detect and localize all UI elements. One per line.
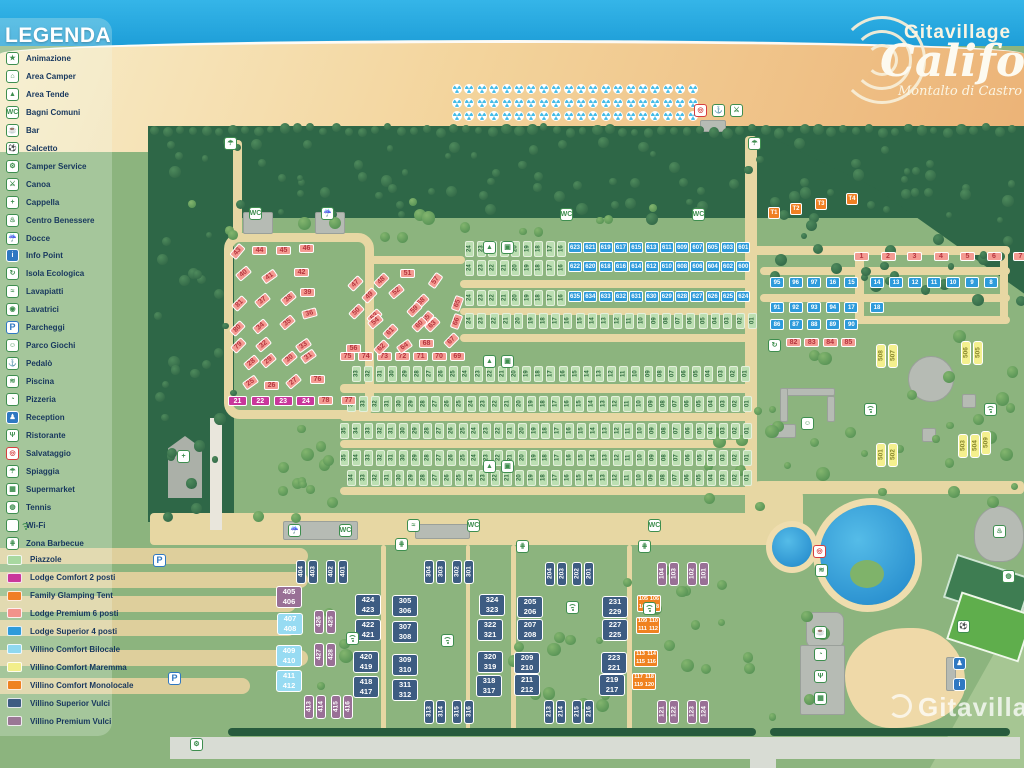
legend-label: Camper Service <box>26 162 86 171</box>
tree <box>299 481 307 489</box>
plot-20: 20 <box>514 313 523 329</box>
plot-34: 34 <box>352 423 361 439</box>
tree <box>948 486 960 498</box>
tree <box>960 189 971 200</box>
tennis-icon: ◍ <box>1002 570 1015 583</box>
tree <box>402 169 408 175</box>
tree <box>514 642 524 652</box>
plot-22: 22 <box>491 396 500 412</box>
plot-05: 05 <box>695 396 704 412</box>
plot-27: 27 <box>431 396 440 412</box>
plot-86: 86 <box>770 319 784 330</box>
centro-benessere-icon: ♨ <box>6 214 19 227</box>
wifi-icon <box>984 403 997 416</box>
plot-08: 08 <box>662 313 671 329</box>
plot-48: 48 <box>373 272 390 289</box>
villa-324-323: 324323 <box>479 594 505 616</box>
plot-08: 08 <box>660 450 669 466</box>
plot-69: 69 <box>450 352 465 361</box>
plot-2: 2 <box>881 252 896 261</box>
plot-71: 71 <box>413 352 428 361</box>
tree <box>547 643 560 656</box>
watermark-spiral-icon <box>888 694 912 718</box>
plot-32: 32 <box>376 450 385 466</box>
plot-22: 22 <box>486 366 495 382</box>
plot-10: 10 <box>637 313 646 329</box>
tree <box>189 127 197 135</box>
plot-12: 12 <box>611 470 620 486</box>
plot-08: 08 <box>660 423 669 439</box>
plot-23: 23 <box>479 396 488 412</box>
accommodation-swatch <box>7 573 22 583</box>
plot-34: 34 <box>352 450 361 466</box>
plot-632: 632 <box>614 291 628 302</box>
plot-39: 39 <box>300 288 315 297</box>
plot-70: 70 <box>432 352 447 361</box>
beach-umbrella-icon <box>564 98 574 108</box>
plot-8: 8 <box>984 277 998 288</box>
legend-item-animazione: ★Animazione <box>6 52 71 65</box>
tree <box>306 485 314 493</box>
road <box>340 384 757 393</box>
tree <box>1008 125 1016 133</box>
plot-602: 602 <box>721 261 735 272</box>
plot-02: 02 <box>731 470 740 486</box>
plot-12: 12 <box>613 450 622 466</box>
plot-23: 23 <box>274 396 293 406</box>
villa-202-201: 202201 <box>572 562 594 586</box>
tree <box>487 178 494 185</box>
bagni-comuni-icon: WC <box>6 106 19 119</box>
plot-601: 601 <box>736 242 750 253</box>
villa-109-110-111-112: 109110111112 <box>636 617 660 634</box>
plot-14: 14 <box>583 366 592 382</box>
tree <box>598 137 608 147</box>
plot-607: 607 <box>690 242 704 253</box>
plot-03: 03 <box>719 450 728 466</box>
ristorante-icon: Ψ <box>6 429 19 442</box>
plot-621: 621 <box>583 242 597 253</box>
tree <box>851 159 860 168</box>
tree <box>638 142 648 152</box>
villa-305-306: 305306 <box>392 595 418 617</box>
tree <box>861 450 868 457</box>
plot-31: 31 <box>387 450 396 466</box>
tree <box>297 190 304 197</box>
legend-item-centro-benessere: ♨Centro Benessere <box>6 214 94 227</box>
legend-label: Bagni Comuni <box>26 108 80 117</box>
plot-82: 82 <box>786 338 801 347</box>
tree <box>644 128 653 137</box>
villa-117-118-119-120: 117118119120 <box>632 673 656 690</box>
tree <box>291 513 301 523</box>
legend-label: Villino Comfort Bilocale <box>30 645 120 654</box>
plot-16: 16 <box>557 260 566 276</box>
tree <box>345 128 353 136</box>
plot-04: 04 <box>707 450 716 466</box>
plot-25: 25 <box>459 423 468 439</box>
plot-20: 20 <box>518 423 527 439</box>
legend-item-calcetto: ⚽Calcetto <box>6 142 58 155</box>
beach-umbrella-icon <box>452 111 462 121</box>
plot-10: 10 <box>636 423 645 439</box>
plot-05: 05 <box>696 450 705 466</box>
tree <box>729 179 739 189</box>
plot-07: 07 <box>668 366 677 382</box>
plot-97: 97 <box>807 277 821 288</box>
plot-11: 11 <box>624 423 633 439</box>
tree <box>813 124 824 135</box>
plot-623: 623 <box>568 242 582 253</box>
plot-24: 24 <box>461 366 470 382</box>
supermarket-icon: ▦ <box>6 483 19 496</box>
tree <box>925 170 936 181</box>
legend-item-lavapiatti: ≈Lavapiatti <box>6 285 63 298</box>
plot-21: 21 <box>228 396 247 406</box>
plot-14: 14 <box>589 423 598 439</box>
plot-610: 610 <box>660 261 674 272</box>
tree <box>169 166 181 178</box>
tree <box>744 166 753 175</box>
plot-19: 19 <box>523 241 532 257</box>
plot-05: 05 <box>695 470 704 486</box>
legend-label: Animazione <box>26 54 71 63</box>
legend-item-bagni-comuni: WCBagni Comuni <box>6 106 80 119</box>
plot-17: 17 <box>551 470 560 486</box>
tree <box>709 127 719 137</box>
plot-32: 32 <box>364 366 373 382</box>
legend-label: Centro Benessere <box>26 216 94 225</box>
plot-7: 7 <box>1013 252 1024 261</box>
legend-label: Family Glamping Tent <box>30 591 113 600</box>
villa-219-217: 219217 <box>599 674 625 696</box>
plot-24: 24 <box>465 241 474 257</box>
tree <box>176 126 184 134</box>
wifi-icon <box>864 403 877 416</box>
plot-30: 30 <box>399 423 408 439</box>
tree <box>604 215 613 224</box>
plot-626: 626 <box>706 291 720 302</box>
plot-620: 620 <box>583 261 597 272</box>
tree <box>852 127 860 135</box>
plot-06: 06 <box>684 450 693 466</box>
reception-icon: ♟ <box>953 657 966 670</box>
plot-13: 13 <box>595 366 604 382</box>
plot-29: 29 <box>401 366 410 382</box>
villa-102-101: 102101 <box>687 562 709 586</box>
villa-404-403: 404403 <box>296 560 318 584</box>
tree <box>565 635 576 646</box>
villa-313-314: 313314 <box>424 700 446 724</box>
plot-03: 03 <box>723 313 732 329</box>
plot-10: 10 <box>636 450 645 466</box>
villa-113-114-115-116: 113114115116 <box>634 650 658 667</box>
tennis-icon: ◍ <box>6 501 19 514</box>
plot-20: 20 <box>518 450 527 466</box>
beach-umbrella-icon <box>564 84 574 94</box>
legend-label: Piscina <box>26 377 54 386</box>
legend-item-accommodation: Villino Comfort Maremma <box>6 662 127 672</box>
plot-12: 12 <box>613 313 622 329</box>
pedalo-icon: ⚓ <box>712 104 725 117</box>
tree <box>605 124 615 134</box>
kiosk <box>962 394 976 408</box>
legend-label: Villino Superior Vulci <box>30 699 110 708</box>
salvataggio-icon: ◎ <box>6 447 19 460</box>
legend-item-tennis: ◍Tennis <box>6 501 51 514</box>
plot-19: 19 <box>523 260 532 276</box>
tree <box>228 230 238 240</box>
plot-12: 12 <box>908 277 922 288</box>
villa-409-410: 409410 <box>276 645 302 667</box>
ristorante-icon: Ψ <box>814 670 827 683</box>
plot-34: 34 <box>347 470 356 486</box>
tree <box>397 127 406 136</box>
hedge <box>228 728 756 736</box>
tree <box>576 203 588 215</box>
beach-umbrella-icon <box>626 98 636 108</box>
docce-icon: ☔ <box>288 524 301 537</box>
tree <box>664 640 675 651</box>
beach-umbrella-icon <box>601 84 611 94</box>
villa-231-229: 231229 <box>602 596 628 618</box>
plot-04: 04 <box>704 366 713 382</box>
plot-18: 18 <box>534 260 543 276</box>
plot-24: 24 <box>470 450 479 466</box>
plot-04: 04 <box>707 470 716 486</box>
plot-627: 627 <box>690 291 704 302</box>
plot-11: 11 <box>623 396 632 412</box>
villa-304-303: 304303 <box>424 560 446 584</box>
plot-634: 634 <box>583 291 597 302</box>
tree <box>471 152 477 158</box>
legend-item-accommodation: Piazzole <box>6 555 62 565</box>
tree <box>179 275 190 286</box>
villa-215-216: 215216 <box>572 700 594 724</box>
plot-04: 04 <box>707 423 716 439</box>
legend-item-area-camper: ⌂Area Camper <box>6 70 76 83</box>
plot-T4: T4 <box>846 193 858 205</box>
legend-item-accommodation: Family Glamping Tent <box>6 591 113 601</box>
area-camper-icon: ⌂ <box>6 70 19 83</box>
plot-17: 17 <box>546 366 555 382</box>
plot-18: 18 <box>539 396 548 412</box>
plot-18: 18 <box>870 302 884 313</box>
tree <box>596 217 603 224</box>
logo-name: California <box>880 40 1024 84</box>
tree <box>806 220 817 231</box>
villa-309-310: 309310 <box>392 654 418 676</box>
plot-630: 630 <box>645 291 659 302</box>
beach-umbrella-icon <box>539 111 549 121</box>
tree <box>1000 448 1013 461</box>
plot-24: 24 <box>470 423 479 439</box>
wifi-icon <box>6 519 19 532</box>
tree <box>375 192 383 200</box>
plot-10: 10 <box>635 470 644 486</box>
tree <box>769 713 777 721</box>
plot-614: 614 <box>629 261 643 272</box>
plot-25: 25 <box>459 450 468 466</box>
plot-52: 52 <box>388 283 405 300</box>
tree <box>212 456 218 462</box>
plot-17: 17 <box>546 241 555 257</box>
villa-307-308: 307308 <box>392 621 418 643</box>
plot-21: 21 <box>498 366 507 382</box>
plot-T2: T2 <box>790 203 802 215</box>
plot-20: 20 <box>510 366 519 382</box>
tree <box>845 427 856 438</box>
accommodation-swatch <box>7 608 22 618</box>
tree <box>789 191 800 202</box>
parcheggi-icon: P <box>6 321 19 334</box>
tree <box>681 659 694 672</box>
legend-label: Area Camper <box>26 72 76 81</box>
legend-label: Pizzeria <box>26 395 56 404</box>
plot-11: 11 <box>623 470 632 486</box>
plot-30: 30 <box>388 366 397 382</box>
villa-427-428: 427428 <box>314 643 336 667</box>
plot-06: 06 <box>683 396 692 412</box>
plot-02: 02 <box>731 396 740 412</box>
plot-635: 635 <box>568 291 582 302</box>
plot-605: 605 <box>706 242 720 253</box>
tree <box>1016 296 1024 306</box>
tree <box>618 128 627 137</box>
plot-29: 29 <box>407 470 416 486</box>
plot-29: 29 <box>407 396 416 412</box>
plot-15: 15 <box>571 366 580 382</box>
plot-13: 13 <box>599 396 608 412</box>
zona-barbecue-icon: ⋕ <box>516 540 529 553</box>
plot-T3: T3 <box>815 198 827 210</box>
legend-item-bar: ☕Bar <box>6 124 39 137</box>
plot-07: 07 <box>672 450 681 466</box>
parcheggi-icon: P <box>168 672 181 685</box>
plot-T1: T1 <box>768 207 780 219</box>
tree <box>735 126 744 135</box>
tree <box>236 200 245 209</box>
plot-03: 03 <box>719 396 728 412</box>
plot-08: 08 <box>659 470 668 486</box>
tree <box>230 390 236 396</box>
plot-88: 88 <box>807 319 821 330</box>
accommodation-swatch <box>7 698 22 708</box>
legend-item-salvataggio: ◎Salvataggio <box>6 447 71 460</box>
accommodation-swatch <box>7 555 22 565</box>
beach-umbrella-icon <box>576 98 586 108</box>
plot-16: 16 <box>826 277 840 288</box>
tree <box>327 497 339 509</box>
plot-26: 26 <box>443 470 452 486</box>
plot-631: 631 <box>629 291 643 302</box>
plot-15: 15 <box>577 423 586 439</box>
legend-label: Salvataggio <box>26 449 71 458</box>
tree <box>354 160 364 170</box>
plot-10: 10 <box>635 396 644 412</box>
beach-umbrella-icon <box>588 98 598 108</box>
tree <box>926 160 934 168</box>
reception-icon: ♟ <box>6 411 19 424</box>
plot-06: 06 <box>684 423 693 439</box>
tree <box>534 172 543 181</box>
zona-barbecue-icon: ⋕ <box>638 540 651 553</box>
tree <box>982 123 990 131</box>
plot-42: 42 <box>294 268 309 277</box>
beach-umbrella-icon <box>477 98 487 108</box>
plot-4: 4 <box>934 252 949 261</box>
plot-23: 23 <box>477 313 486 329</box>
plot-21: 21 <box>502 313 511 329</box>
plot-33: 33 <box>359 470 368 486</box>
plot-29: 29 <box>411 423 420 439</box>
wifi-icon <box>566 601 579 614</box>
plot-30: 30 <box>395 470 404 486</box>
tree <box>423 125 431 133</box>
tree <box>676 586 687 597</box>
accommodation-swatch <box>7 680 22 690</box>
plot-28: 28 <box>423 423 432 439</box>
plot-18: 18 <box>534 366 543 382</box>
legend-label: Pedalò <box>26 359 52 368</box>
legend-item-parco-giochi: ☺Parco Giochi <box>6 339 75 352</box>
plot-03: 03 <box>719 423 728 439</box>
legend-item-canoa: ⚔Canoa <box>6 178 50 191</box>
tree <box>932 435 939 442</box>
tree <box>410 127 418 135</box>
tree <box>339 649 353 663</box>
legend-item-ristorante: ΨRistorante <box>6 429 66 442</box>
bagni-comuni-icon: WC <box>339 524 352 537</box>
beach-umbrella-icon <box>502 98 512 108</box>
plot-13: 13 <box>889 277 903 288</box>
plot-20: 20 <box>511 260 520 276</box>
legend-label: Tennis <box>26 503 51 512</box>
plot-25: 25 <box>455 470 464 486</box>
tree <box>297 175 303 181</box>
plot-06: 06 <box>686 313 695 329</box>
tree <box>317 682 325 690</box>
campground-map: 2423222120191817162423222120191817162423… <box>0 0 1024 768</box>
animazione-icon: ★ <box>6 52 19 65</box>
villa-509: 509 <box>981 431 991 455</box>
plot-17: 17 <box>553 450 562 466</box>
plot-24: 24 <box>465 260 474 276</box>
tree <box>398 211 405 218</box>
tree <box>775 254 787 266</box>
plot-25: 25 <box>455 396 464 412</box>
service-building <box>415 524 470 539</box>
tree <box>972 294 984 306</box>
beach-umbrella-icon <box>551 98 561 108</box>
plot-22: 22 <box>251 396 270 406</box>
tree <box>826 127 836 137</box>
plot-11: 11 <box>625 313 634 329</box>
villa-501-502: 501502 <box>876 443 898 467</box>
tree <box>769 406 776 413</box>
legend-label: Zona Barbecue <box>26 539 84 548</box>
villa-207-208: 207208 <box>517 619 543 641</box>
villa-322-321: 322321 <box>477 619 503 641</box>
tree <box>801 233 807 239</box>
tree <box>154 312 162 320</box>
plot-85: 85 <box>841 338 856 347</box>
plot-16: 16 <box>557 290 566 306</box>
beach-umbrella-icon <box>638 84 648 94</box>
wifi-icon <box>346 632 359 645</box>
legend-label: Parco Giochi <box>26 341 75 350</box>
legend-item-accommodation: Villino Comfort Bilocale <box>6 644 120 654</box>
